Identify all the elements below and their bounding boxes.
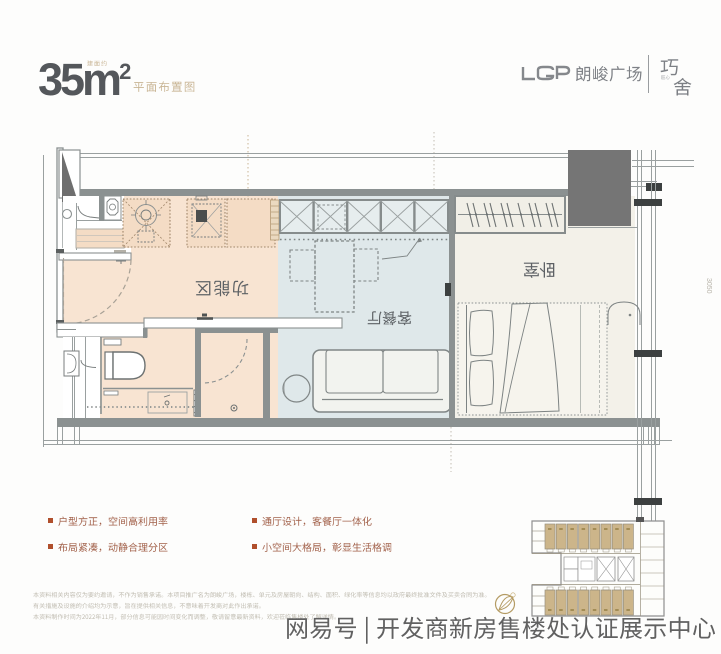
svg-text:3050: 3050: [705, 278, 712, 294]
